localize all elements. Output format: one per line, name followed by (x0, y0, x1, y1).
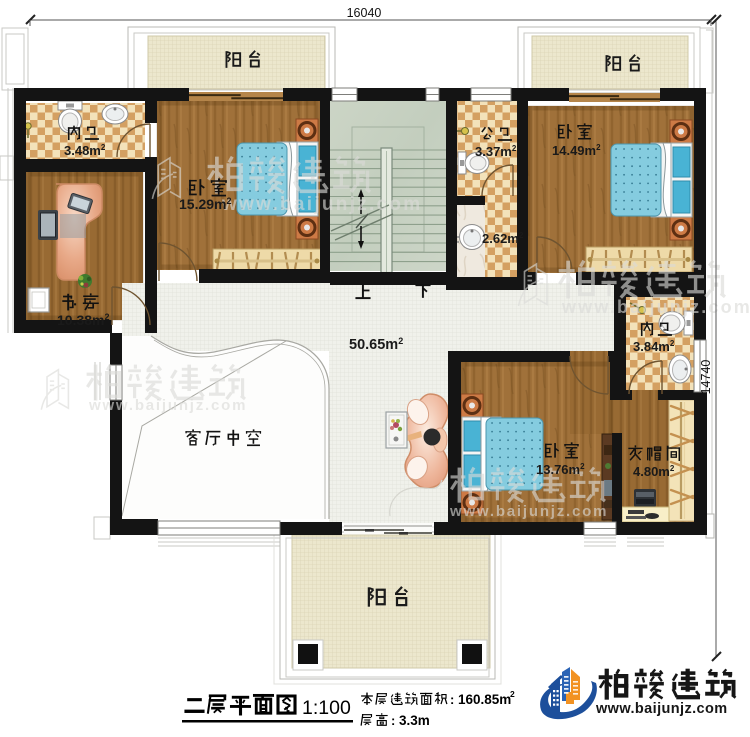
svg-text:3.3m: 3.3m (399, 713, 430, 728)
svg-text:3.84m2: 3.84m2 (633, 339, 675, 354)
svg-text:14.49m2: 14.49m2 (552, 143, 601, 158)
svg-text:1:100: 1:100 (302, 697, 351, 719)
svg-text:50.65m2: 50.65m2 (349, 336, 403, 353)
svg-text:13.76m2: 13.76m2 (536, 462, 585, 477)
svg-text::: : (450, 692, 454, 707)
svg-text:www.baijunjz.com: www.baijunjz.com (561, 297, 750, 317)
svg-text:2: 2 (510, 689, 515, 699)
svg-text:www.baijunjz.com: www.baijunjz.com (221, 194, 422, 215)
svg-text:3.48m2: 3.48m2 (64, 143, 106, 158)
svg-text:www.baijunjz.com: www.baijunjz.com (595, 701, 728, 717)
svg-text:2.62m2: 2.62m2 (482, 231, 524, 246)
svg-text:16040: 16040 (347, 6, 382, 20)
svg-text:14740: 14740 (699, 360, 713, 395)
svg-text:www.baijunjz.com: www.baijunjz.com (88, 397, 247, 414)
svg-text:15.29m2: 15.29m2 (179, 196, 232, 212)
svg-text:4.80m2: 4.80m2 (633, 464, 675, 479)
svg-text:www.baijunjz.com: www.baijunjz.com (449, 503, 608, 520)
svg-text:160.85m: 160.85m (458, 692, 511, 707)
svg-text:10.38m2: 10.38m2 (57, 312, 110, 328)
svg-text:3.37m2: 3.37m2 (475, 144, 517, 159)
svg-text::: : (391, 713, 395, 728)
